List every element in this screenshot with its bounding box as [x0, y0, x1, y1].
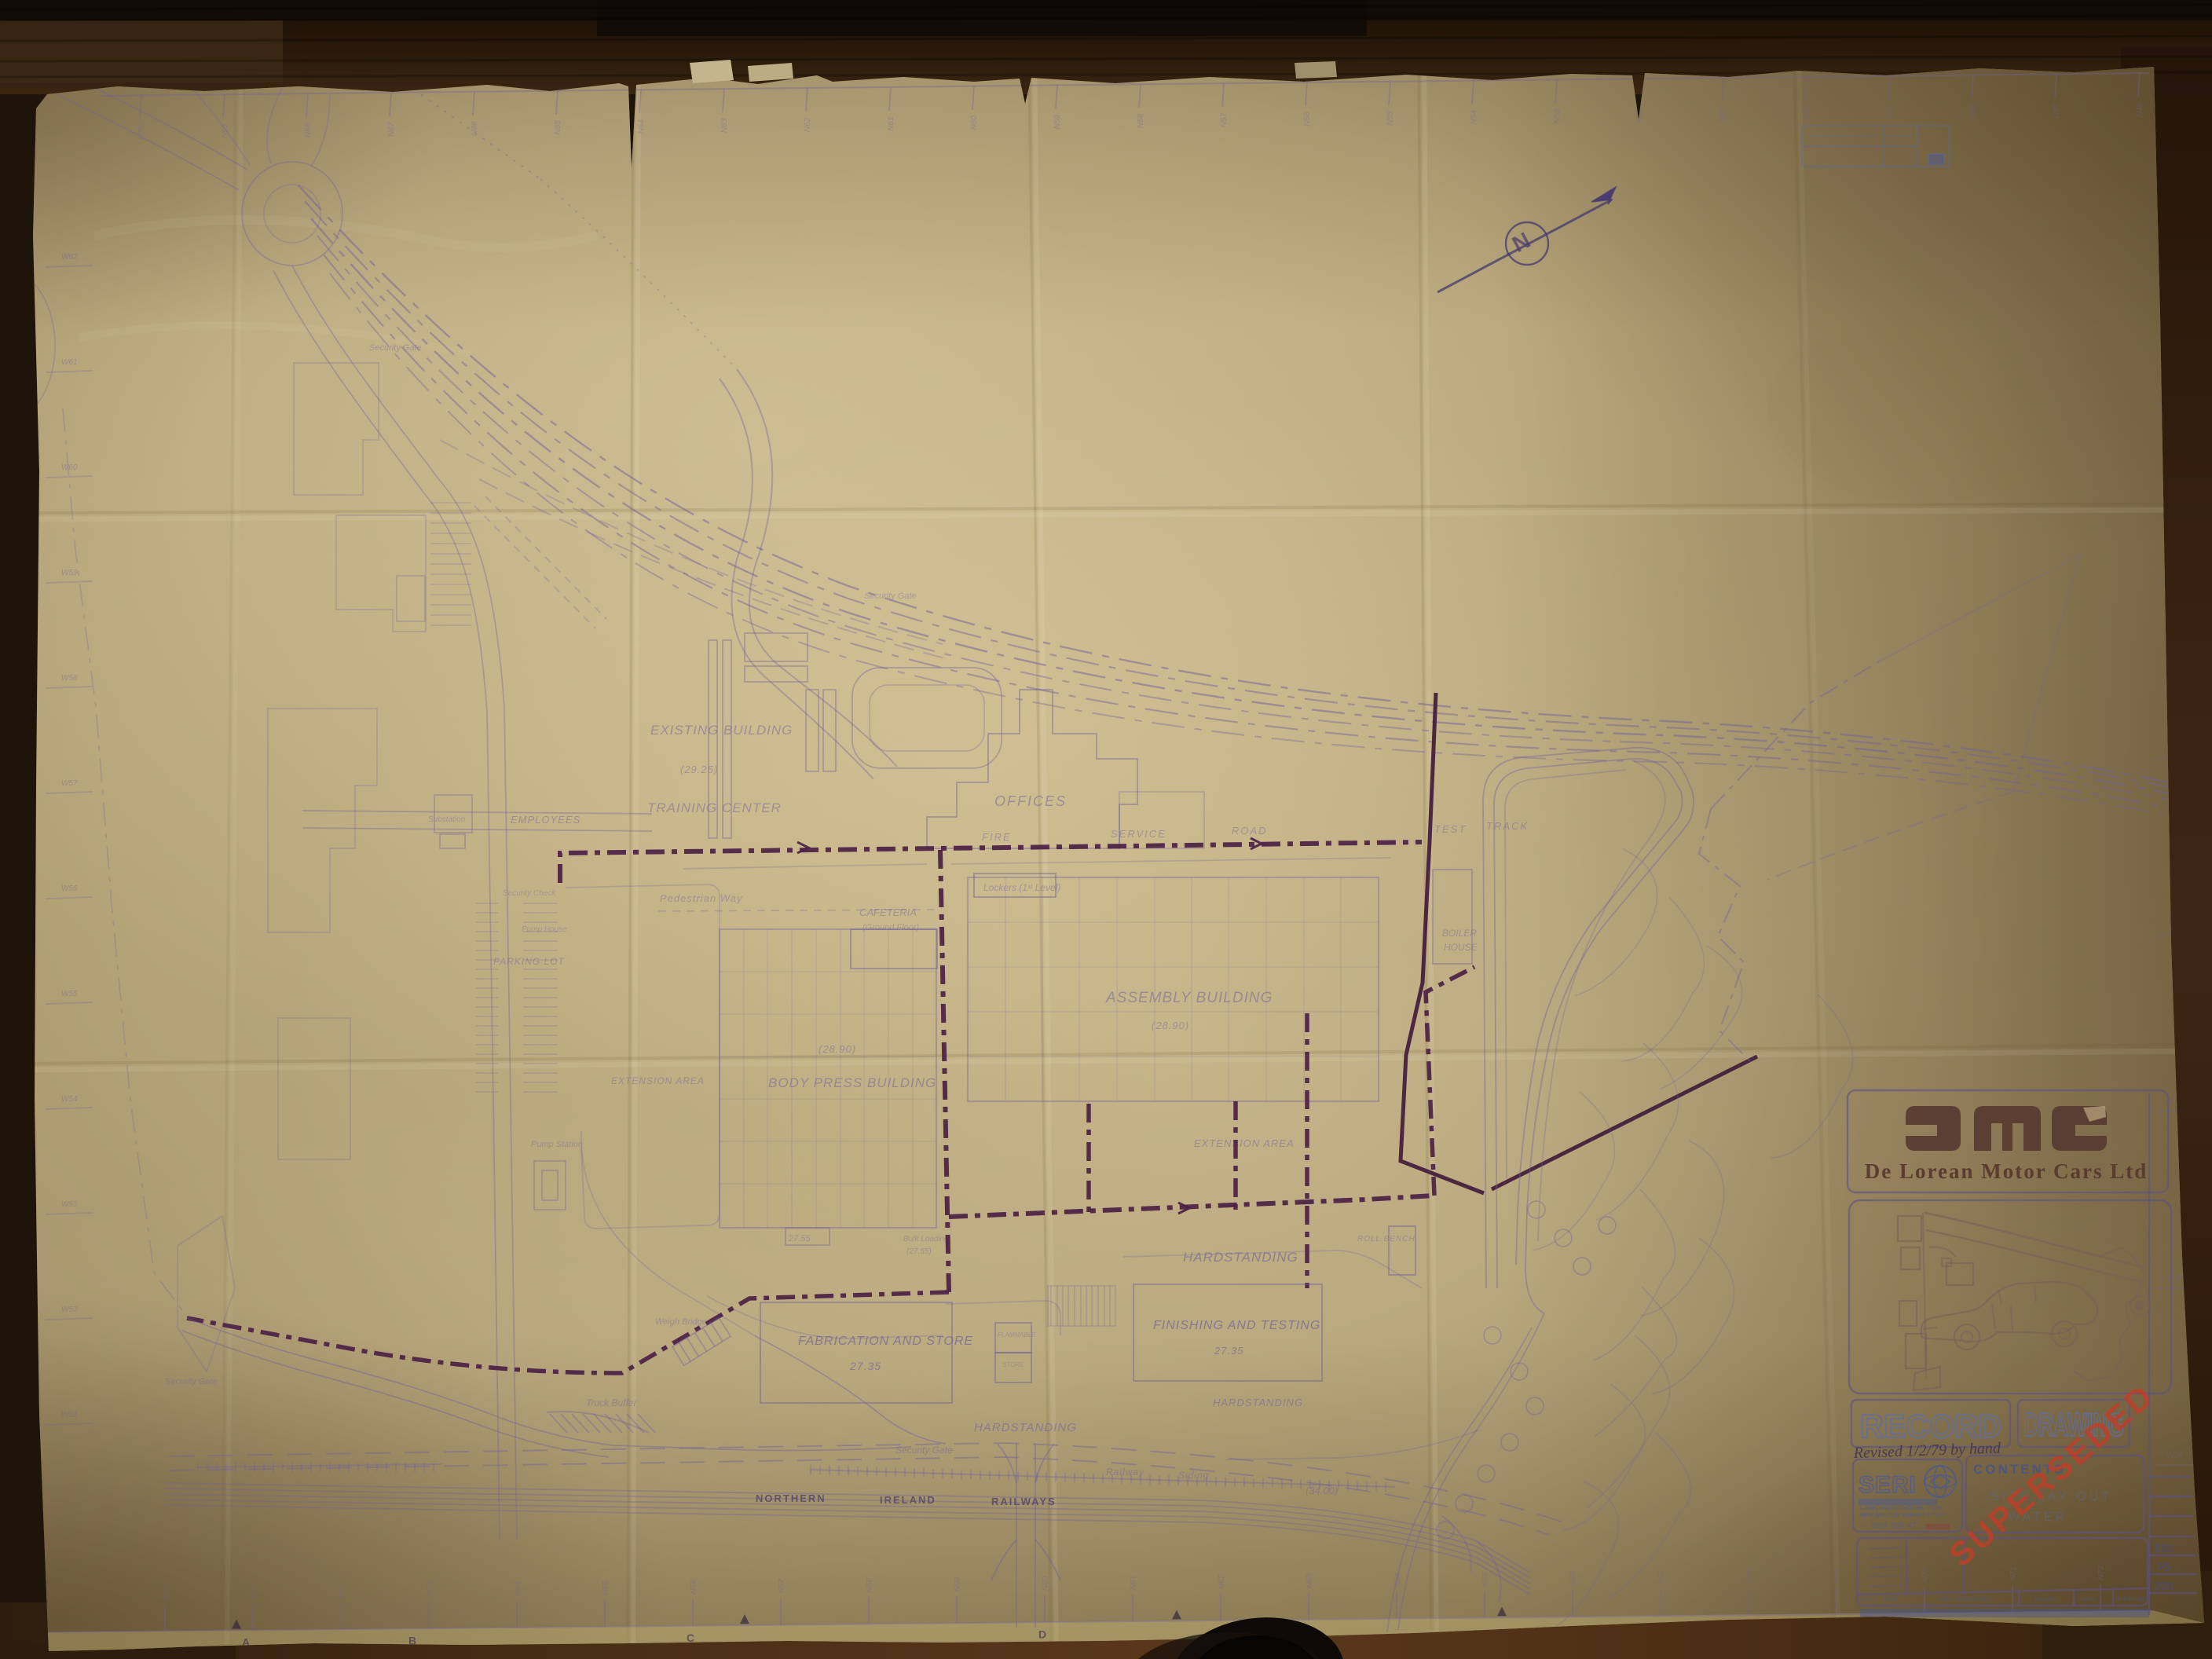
- svg-text:N61: N61: [1130, 1576, 1138, 1590]
- svg-text:ISSUE: ISSUE: [1860, 1597, 1877, 1602]
- svg-text:W34: W34: [2166, 1451, 2183, 1459]
- svg-text:Pedestrian Way: Pedestrian Way: [660, 892, 743, 904]
- svg-text:W62: W62: [61, 253, 78, 262]
- svg-text:W52: W52: [61, 1306, 78, 1314]
- svg-text:Truck Buffer: Truck Buffer: [586, 1397, 637, 1408]
- svg-text:N72: N72: [2097, 1566, 2106, 1580]
- svg-text:N49: N49: [1886, 105, 1895, 120]
- svg-text:LAMBOHURST HOUSE, 7 CHI: LAMBOHURST HOUSE, 7 CHI: [1860, 1504, 1942, 1511]
- svg-text:Siding: Siding: [1178, 1470, 1209, 1481]
- svg-text:PARKING LOT: PARKING LOT: [493, 956, 565, 967]
- svg-text:W53: W53: [61, 1200, 78, 1209]
- svg-text:Lockers (1ˢᵗ Level): Lockers (1ˢᵗ Level): [983, 882, 1060, 893]
- svg-text:RECORD: RECORD: [1860, 1408, 2001, 1445]
- svg-text:N61: N61: [887, 116, 895, 130]
- svg-text:N60: N60: [970, 115, 979, 130]
- svg-text:IRELAND: IRELAND: [880, 1494, 936, 1506]
- svg-text:W35: W35: [2166, 1274, 2183, 1283]
- svg-text:EXISTING BUILDING: EXISTING BUILDING: [650, 723, 793, 738]
- svg-text:EXTENSION AREA: EXTENSION AREA: [1194, 1137, 1295, 1149]
- svg-text:N48: N48: [1969, 104, 1978, 119]
- svg-text:FINISHING AND TESTING: FINISHING AND TESTING: [1153, 1319, 1320, 1332]
- svg-text:N58: N58: [866, 1578, 874, 1593]
- svg-text:C: C: [687, 1632, 694, 1644]
- svg-text:STORE: STORE: [1002, 1361, 1024, 1368]
- svg-text:DRAWN: DRAWN: [2034, 1597, 2055, 1602]
- svg-text:TRACK: TRACK: [1486, 820, 1529, 832]
- svg-text:N47: N47: [2053, 104, 2061, 119]
- svg-text:W57: W57: [61, 779, 78, 788]
- svg-text:W55: W55: [61, 990, 78, 998]
- svg-text:TRAINING CENTER: TRAINING CENTER: [647, 800, 782, 815]
- svg-text:N62: N62: [804, 117, 812, 132]
- svg-text:N65: N65: [554, 120, 562, 135]
- svg-text:N58: N58: [1137, 113, 1145, 128]
- svg-text:(29.25): (29.25): [680, 764, 718, 775]
- svg-text:Security Gate: Security Gate: [165, 1377, 218, 1386]
- svg-text:Railway: Railway: [1106, 1467, 1144, 1478]
- svg-text:N50: N50: [162, 1585, 170, 1600]
- svg-text:RAILWAYS: RAILWAYS: [991, 1496, 1057, 1507]
- svg-text:BOILER: BOILER: [1442, 928, 1477, 939]
- svg-text:N64: N64: [637, 119, 646, 134]
- svg-text:N67: N67: [1657, 1570, 1666, 1585]
- svg-text:N59: N59: [954, 1577, 962, 1592]
- svg-text:Weigh Bridge: Weigh Bridge: [655, 1317, 707, 1327]
- svg-text:OFFICES: OFFICES: [994, 793, 1067, 809]
- svg-text:N51: N51: [250, 1584, 258, 1599]
- svg-text:CAFETERIA: CAFETERIA: [859, 906, 917, 918]
- svg-text:W61: W61: [61, 358, 78, 367]
- svg-text:N56: N56: [1303, 112, 1312, 126]
- svg-text:HOUSE: HOUSE: [1444, 942, 1478, 953]
- svg-text:N63: N63: [1306, 1573, 1314, 1588]
- svg-text:SERI: SERI: [1859, 1472, 1917, 1498]
- svg-text:D: D: [1038, 1628, 1046, 1640]
- svg-text:NEW MALDEN SURREY KT3 4: NEW MALDEN SURREY KT3 4: [1860, 1511, 1943, 1518]
- svg-text:Security Gate: Security Gate: [895, 1445, 953, 1456]
- svg-text:SERVICE: SERVICE: [1111, 828, 1166, 840]
- svg-text:(27.55): (27.55): [906, 1247, 932, 1256]
- svg-text:W56: W56: [61, 884, 78, 893]
- svg-text:Pump House: Pump House: [522, 925, 567, 934]
- svg-text:(Ground Floor): (Ground Floor): [862, 923, 919, 932]
- svg-text:EMPLOYEES: EMPLOYEES: [511, 814, 580, 826]
- svg-text:De Lorean Motor Cars Ltd: De Lorean Motor Cars Ltd: [1865, 1159, 2148, 1183]
- svg-text:N71: N71: [2009, 1566, 2018, 1580]
- svg-text:FIRE: FIRE: [982, 831, 1012, 843]
- svg-text:FABRICATION AND STORE: FABRICATION AND STORE: [798, 1335, 973, 1348]
- svg-text:27.35: 27.35: [1214, 1345, 1244, 1357]
- svg-text:W58: W58: [61, 674, 78, 683]
- svg-text:CHKD: CHKD: [2080, 1597, 2096, 1602]
- svg-text:Pump Station: Pump Station: [531, 1140, 583, 1149]
- svg-text:Security Check: Security Check: [503, 889, 556, 898]
- svg-text:SER 206 4T: SER 206 4T: [1871, 1522, 1917, 1529]
- svg-text:N57: N57: [778, 1579, 786, 1594]
- svg-text:W54: W54: [61, 1095, 78, 1104]
- svg-text:27.55: 27.55: [788, 1234, 811, 1243]
- svg-text:27.35: 27.35: [849, 1360, 881, 1372]
- svg-text:F5: F5: [2157, 1561, 2171, 1574]
- svg-text:BODY PRESS BUILDING: BODY PRESS BUILDING: [768, 1075, 936, 1090]
- svg-text:HARDSTANDING: HARDSTANDING: [1213, 1397, 1303, 1408]
- svg-text:Bulk Loading: Bulk Loading: [903, 1235, 949, 1243]
- svg-text:ASSEMBLY BUILDING: ASSEMBLY BUILDING: [1105, 990, 1273, 1006]
- svg-text:009: 009: [2154, 1580, 2174, 1593]
- svg-text:N70: N70: [1921, 1567, 1930, 1582]
- svg-text:EXTENSION AREA: EXTENSION AREA: [611, 1075, 705, 1086]
- svg-text:APPROVED: APPROVED: [2116, 1597, 2147, 1602]
- svg-text:N53: N53: [1553, 109, 1562, 124]
- svg-text:N57: N57: [1220, 112, 1229, 127]
- svg-text:N68: N68: [1745, 1569, 1754, 1584]
- svg-text:N63: N63: [720, 118, 729, 133]
- svg-text:W51: W51: [61, 1411, 78, 1419]
- svg-text:HARDSTANDING: HARDSTANDING: [1183, 1250, 1298, 1265]
- svg-text:Security Gate: Security Gate: [864, 591, 917, 601]
- svg-text:(28.90): (28.90): [1152, 1020, 1189, 1031]
- svg-text:N67: N67: [387, 122, 396, 137]
- svg-text:N68: N68: [304, 123, 313, 137]
- svg-text:Security Gate: Security Gate: [369, 343, 422, 353]
- svg-text:N56: N56: [690, 1580, 698, 1595]
- svg-text:N53: N53: [426, 1582, 434, 1597]
- svg-text:N46: N46: [2136, 102, 2144, 117]
- svg-text:N69: N69: [1833, 1568, 1842, 1583]
- svg-text:FLAMMABLE: FLAMMABLE: [998, 1331, 1036, 1339]
- svg-text:N60: N60: [1042, 1576, 1050, 1591]
- svg-text:190: 190: [2154, 1542, 2174, 1555]
- svg-text:N55: N55: [1386, 111, 1395, 126]
- svg-text:Substation: Substation: [428, 815, 466, 824]
- svg-text:(28.90): (28.90): [819, 1043, 856, 1055]
- svg-text:NORTHERN: NORTHERN: [756, 1492, 826, 1504]
- svg-text:ROAD: ROAD: [1232, 825, 1268, 837]
- svg-text:N62: N62: [1218, 1574, 1226, 1589]
- svg-text:N50: N50: [1803, 106, 1811, 121]
- svg-text:W59: W59: [61, 569, 78, 577]
- svg-text:N54: N54: [514, 1581, 522, 1596]
- svg-text:HARDSTANDING: HARDSTANDING: [974, 1421, 1077, 1434]
- svg-text:N54: N54: [1470, 110, 1478, 125]
- svg-text:N52: N52: [338, 1583, 346, 1598]
- svg-text:N59: N59: [1053, 115, 1062, 130]
- svg-text:W60: W60: [61, 463, 78, 472]
- svg-text:TEST: TEST: [1434, 823, 1467, 835]
- svg-text:ROLL BENCH: ROLL BENCH: [1357, 1235, 1415, 1243]
- svg-text:REVISION RECORD: REVISION RECORD: [1940, 1597, 1992, 1602]
- svg-text:N51: N51: [1719, 108, 1728, 122]
- svg-text:DATE: DATE: [1884, 1597, 1898, 1602]
- svg-text:(34.00): (34.00): [1306, 1485, 1338, 1496]
- svg-text:N65: N65: [1481, 1572, 1490, 1587]
- svg-text:N55: N55: [602, 1580, 610, 1595]
- svg-text:N66: N66: [1569, 1571, 1578, 1586]
